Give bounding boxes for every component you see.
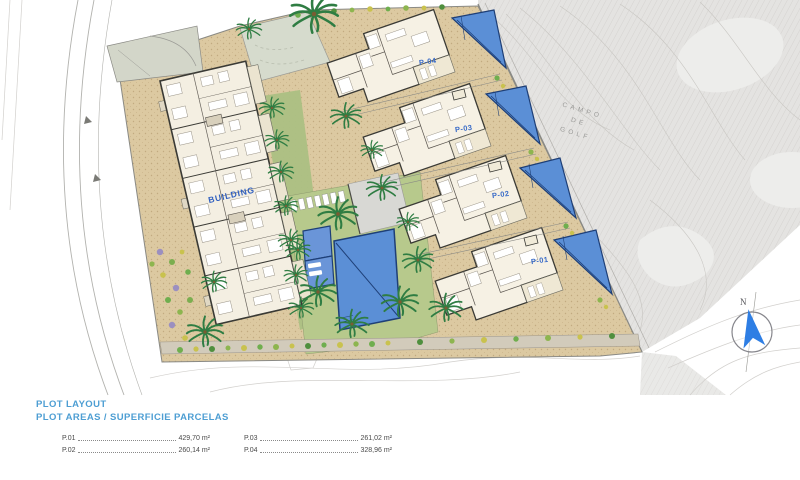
legend-entry-value: 328,96 m² [360, 447, 392, 454]
dotted-leader [260, 452, 359, 453]
legend-entry-label: P.03 [244, 435, 258, 442]
legend-entry-value: 429,70 m² [178, 435, 210, 442]
legend-entry-value: 260,14 m² [178, 447, 210, 454]
legend-title: PLOT LAYOUT [36, 398, 396, 411]
site-plan-page: BUILDING [0, 0, 800, 480]
legend: PLOT LAYOUT PLOT AREAS / SUPERFICIE PARC… [36, 398, 396, 454]
legend-entry-label: P.02 [62, 447, 76, 454]
legend-entry-value: 261,02 m² [360, 435, 392, 442]
legend-subtitle: PLOT AREAS / SUPERFICIE PARCELAS [36, 411, 396, 424]
legend-entry-p03: P.03 261,02 m² [244, 430, 392, 442]
legend-entry-label: P.04 [244, 447, 258, 454]
dotted-leader [78, 452, 177, 453]
dotted-leader [78, 440, 177, 441]
legend-entry-label: P.01 [62, 435, 76, 442]
legend-entry-p02: P.02 260,14 m² [62, 442, 210, 454]
dotted-leader [260, 440, 359, 441]
legend-entry-p01: P.01 429,70 m² [62, 430, 210, 442]
legend-entry-p04: P.04 328,96 m² [244, 442, 392, 454]
compass-north-label: N [740, 297, 747, 307]
